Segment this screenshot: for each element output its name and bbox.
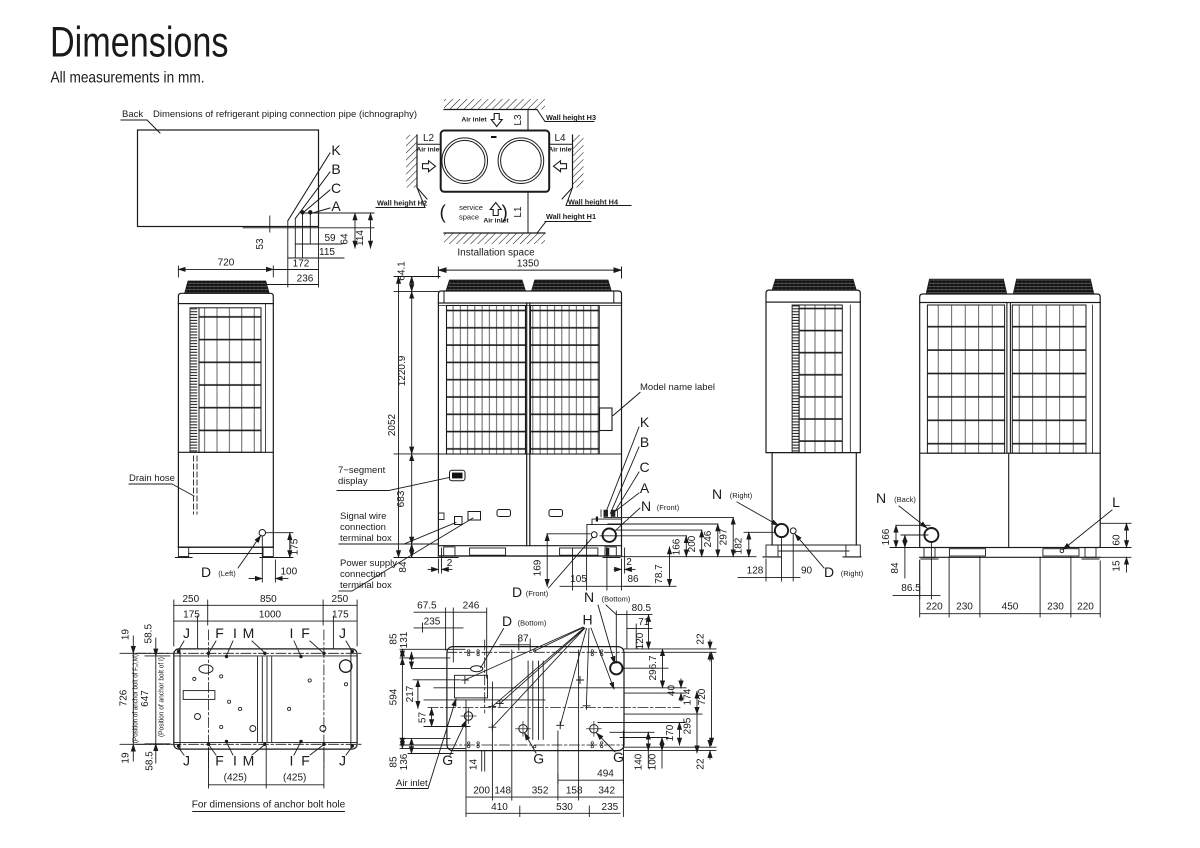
svg-text:J: J xyxy=(183,625,190,641)
svg-text:Installation space: Installation space xyxy=(457,248,535,259)
svg-text:720: 720 xyxy=(218,258,235,269)
svg-text:For dimensions of anchor bolt: For dimensions of anchor bolt hole xyxy=(192,800,346,811)
svg-text:(Back): (Back) xyxy=(894,495,916,504)
svg-text:246: 246 xyxy=(703,530,714,547)
svg-text:B: B xyxy=(640,434,649,450)
svg-text:(Right): (Right) xyxy=(841,569,864,578)
svg-text:(Bottom): (Bottom) xyxy=(518,619,547,628)
svg-text:236: 236 xyxy=(297,274,314,285)
svg-text:84: 84 xyxy=(890,562,901,574)
svg-text:296.7: 296.7 xyxy=(648,655,659,680)
svg-text:(Position of anchor bolt of I): (Position of anchor bolt of I) xyxy=(156,657,165,737)
svg-text:58.5: 58.5 xyxy=(144,624,155,644)
svg-text:297: 297 xyxy=(718,528,729,545)
svg-text:87: 87 xyxy=(517,633,529,644)
svg-text:250: 250 xyxy=(182,594,199,605)
svg-text:115: 115 xyxy=(319,247,335,258)
svg-text:172: 172 xyxy=(293,259,310,270)
svg-text:175: 175 xyxy=(290,538,301,555)
svg-text:85: 85 xyxy=(388,633,399,645)
svg-text:D: D xyxy=(502,613,512,629)
svg-text:2052: 2052 xyxy=(387,413,398,436)
svg-text:D: D xyxy=(824,564,834,580)
svg-text:230: 230 xyxy=(956,602,973,613)
svg-text:I: I xyxy=(290,753,294,769)
svg-text:22: 22 xyxy=(696,758,707,770)
svg-text:14: 14 xyxy=(469,759,480,771)
svg-text:128: 128 xyxy=(747,566,764,577)
svg-text:J: J xyxy=(339,625,346,641)
svg-text:19: 19 xyxy=(120,752,131,764)
svg-text:19: 19 xyxy=(120,629,131,641)
svg-text:(Left): (Left) xyxy=(218,569,236,578)
svg-text:terminal box: terminal box xyxy=(340,533,392,544)
svg-text:(Front): (Front) xyxy=(657,503,680,512)
svg-text:A: A xyxy=(331,198,341,214)
svg-text:15: 15 xyxy=(1112,560,1123,572)
svg-text:Wall height H2: Wall height H2 xyxy=(377,199,427,208)
svg-text:D: D xyxy=(201,564,211,580)
svg-text:64.1: 64.1 xyxy=(397,261,408,281)
svg-text:N: N xyxy=(712,486,722,502)
svg-text:F: F xyxy=(215,625,224,641)
svg-text:57: 57 xyxy=(417,712,428,724)
svg-text:148: 148 xyxy=(494,786,511,797)
svg-text:1000: 1000 xyxy=(259,610,282,621)
svg-text:F: F xyxy=(215,753,224,769)
svg-text:166: 166 xyxy=(671,538,682,555)
svg-text:M: M xyxy=(243,625,255,641)
svg-text:1220.9: 1220.9 xyxy=(397,355,408,386)
svg-text:217: 217 xyxy=(405,685,416,702)
svg-text:182: 182 xyxy=(734,537,745,554)
svg-text:Dimensions: Dimensions xyxy=(50,20,229,67)
svg-text:N: N xyxy=(876,490,886,506)
svg-text:N: N xyxy=(584,589,594,605)
svg-text:G: G xyxy=(533,751,544,767)
svg-text:Signal wire: Signal wire xyxy=(340,511,386,522)
svg-text:Power supply: Power supply xyxy=(340,558,397,569)
svg-text:service: service xyxy=(459,203,483,212)
svg-text:158: 158 xyxy=(566,786,583,797)
svg-text:530: 530 xyxy=(556,802,573,813)
svg-text:K: K xyxy=(640,414,650,430)
svg-text:53: 53 xyxy=(255,238,266,250)
svg-text:B: B xyxy=(331,161,340,177)
svg-text:F: F xyxy=(301,753,310,769)
svg-text:170: 170 xyxy=(665,724,676,741)
svg-text:410: 410 xyxy=(491,802,508,813)
svg-text:220: 220 xyxy=(1077,602,1094,613)
svg-text:64: 64 xyxy=(340,233,351,245)
svg-text:175: 175 xyxy=(183,610,200,621)
svg-text:114: 114 xyxy=(355,230,366,246)
svg-text:120: 120 xyxy=(635,632,646,649)
svg-text:105: 105 xyxy=(570,574,587,585)
svg-text:40: 40 xyxy=(666,685,677,697)
svg-text:494: 494 xyxy=(597,769,614,780)
svg-text:169: 169 xyxy=(533,559,544,576)
svg-text:C: C xyxy=(331,180,341,196)
svg-text:246: 246 xyxy=(463,601,480,612)
svg-text:166: 166 xyxy=(881,528,892,545)
svg-text:L1: L1 xyxy=(513,206,524,218)
svg-text:C: C xyxy=(639,459,649,475)
svg-text:295: 295 xyxy=(682,717,693,734)
svg-text:450: 450 xyxy=(1002,602,1019,613)
svg-text:86: 86 xyxy=(627,574,639,585)
svg-text:A: A xyxy=(640,480,650,496)
svg-text:I: I xyxy=(233,625,237,641)
svg-text:7−segment: 7−segment xyxy=(338,465,386,476)
svg-text:L: L xyxy=(1112,494,1120,510)
svg-text:647: 647 xyxy=(140,690,151,707)
svg-text:850: 850 xyxy=(260,594,277,605)
svg-text:230: 230 xyxy=(1047,602,1064,613)
svg-text:58.5: 58.5 xyxy=(145,751,156,771)
svg-text:60: 60 xyxy=(1112,534,1123,546)
svg-text:Air inlet: Air inlet xyxy=(396,778,428,789)
svg-text:(: ( xyxy=(440,203,447,224)
svg-text:2: 2 xyxy=(447,558,453,569)
svg-text:1350: 1350 xyxy=(517,259,540,270)
svg-text:Wall height H1: Wall height H1 xyxy=(546,212,596,221)
svg-text:67.5: 67.5 xyxy=(417,601,437,612)
svg-text:(425): (425) xyxy=(224,773,247,784)
svg-text:22: 22 xyxy=(696,633,707,645)
svg-text:(Front): (Front) xyxy=(526,589,549,598)
svg-text:All measurements in mm.: All measurements in mm. xyxy=(51,70,205,87)
svg-text:131: 131 xyxy=(399,631,410,648)
svg-text:250: 250 xyxy=(332,594,349,605)
svg-text:84: 84 xyxy=(398,561,409,573)
svg-text:L2: L2 xyxy=(423,133,435,144)
svg-text:H: H xyxy=(582,612,592,628)
svg-text:Air inlet: Air inlet xyxy=(461,117,487,124)
svg-text:2: 2 xyxy=(626,557,632,568)
svg-text:(Bottom): (Bottom) xyxy=(602,595,631,604)
svg-text:space: space xyxy=(459,213,479,222)
svg-text:200: 200 xyxy=(473,786,490,797)
svg-text:80.5: 80.5 xyxy=(632,603,652,614)
svg-text:I: I xyxy=(233,753,237,769)
svg-text:(Right): (Right) xyxy=(730,491,753,500)
svg-text:78.7: 78.7 xyxy=(654,564,665,584)
svg-text:174: 174 xyxy=(682,688,693,705)
svg-text:235: 235 xyxy=(602,802,619,813)
svg-text:Air inlet: Air inlet xyxy=(548,147,574,154)
svg-text:Air inlet: Air inlet xyxy=(483,218,509,225)
svg-text:Air inlet: Air inlet xyxy=(416,147,442,154)
svg-text:235: 235 xyxy=(424,616,441,627)
svg-text:720: 720 xyxy=(697,688,708,705)
svg-text:200: 200 xyxy=(687,535,698,552)
svg-text:Drain hose: Drain hose xyxy=(129,473,175,484)
svg-text:(425): (425) xyxy=(283,773,306,784)
svg-text:342: 342 xyxy=(598,786,615,797)
svg-text:86.5: 86.5 xyxy=(901,583,921,594)
svg-text:L4: L4 xyxy=(554,133,566,144)
svg-text:L3: L3 xyxy=(513,114,524,126)
svg-text:594: 594 xyxy=(388,688,399,705)
svg-text:Model name label: Model name label xyxy=(640,382,715,393)
svg-text:I: I xyxy=(290,625,294,641)
svg-text:F: F xyxy=(301,625,310,641)
svg-text:N: N xyxy=(641,498,651,514)
svg-text:59: 59 xyxy=(324,233,336,244)
svg-text:726: 726 xyxy=(118,689,129,706)
svg-text:220: 220 xyxy=(926,602,943,613)
svg-text:G: G xyxy=(442,752,453,768)
svg-text:352: 352 xyxy=(532,786,549,797)
svg-text:J: J xyxy=(339,753,346,769)
svg-text:K: K xyxy=(331,142,341,158)
svg-text:100: 100 xyxy=(280,567,297,578)
svg-text:136: 136 xyxy=(399,753,410,770)
svg-text:Back: Back xyxy=(122,109,143,120)
svg-text:683: 683 xyxy=(396,490,407,507)
svg-text:Dimensions of refrigerant pipi: Dimensions of refrigerant piping connect… xyxy=(153,109,417,120)
svg-text:Wall height H3: Wall height H3 xyxy=(546,113,596,122)
svg-text:terminal box: terminal box xyxy=(340,580,392,591)
svg-text:D: D xyxy=(512,584,522,600)
svg-text:90: 90 xyxy=(801,566,813,577)
svg-text:display: display xyxy=(338,476,368,487)
svg-text:85: 85 xyxy=(388,756,399,768)
svg-text:(Position of anchor bolt of F,: (Position of anchor bolt of F,J,M) xyxy=(131,654,140,743)
svg-text:140: 140 xyxy=(634,753,645,770)
svg-text:connection: connection xyxy=(340,522,386,533)
svg-text:100: 100 xyxy=(647,753,658,770)
svg-text:175: 175 xyxy=(332,610,349,621)
